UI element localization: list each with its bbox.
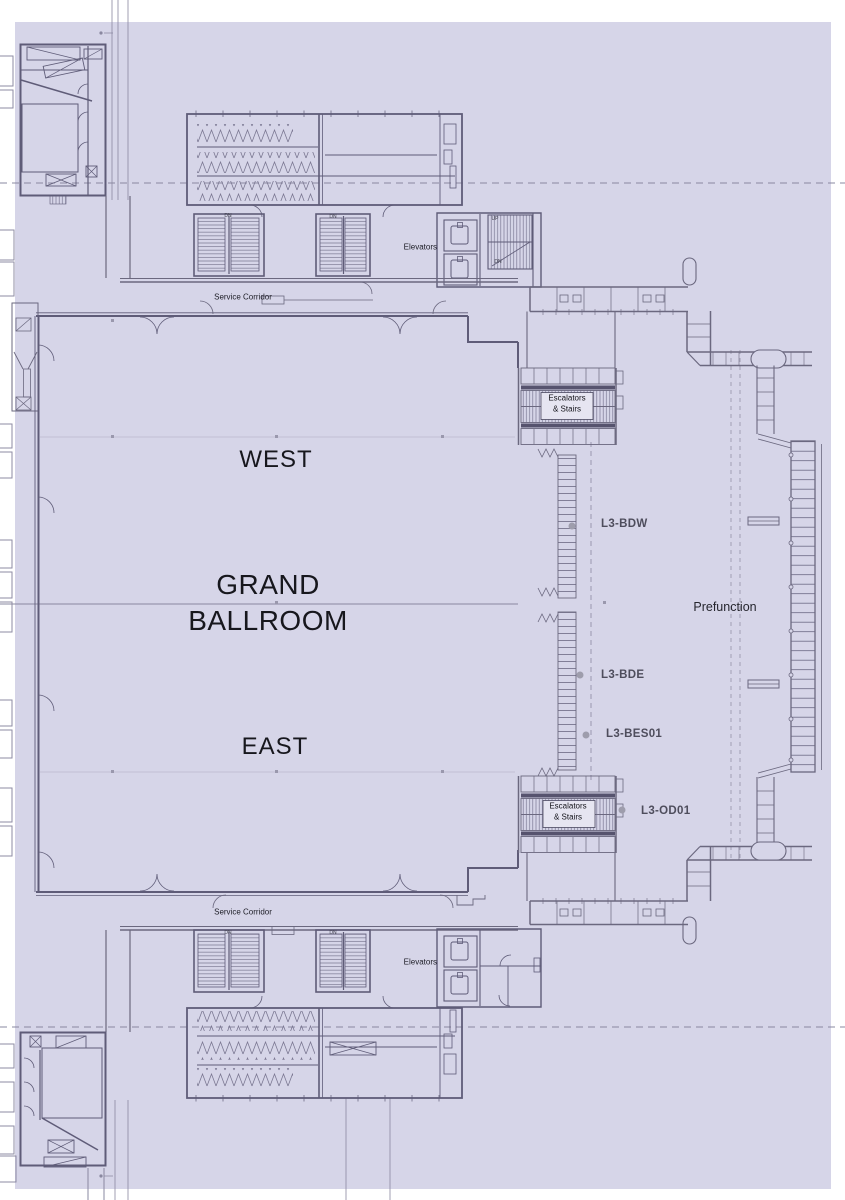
stair-dn-mark: DN: [329, 214, 336, 220]
label-service-corridor-top: Service Corridor: [214, 293, 272, 302]
escalators-line2: & Stairs: [554, 812, 582, 821]
location-marker-dot: [583, 732, 590, 739]
point-label-l3-bes01: L3-BES01: [606, 728, 662, 740]
label-elevators-bottom: Elevators: [404, 958, 437, 967]
point-label-l3-bde: L3-BDE: [601, 669, 644, 681]
room-title-ballroom: BALLROOM: [188, 605, 348, 637]
left-edge-room-fragments: [0, 56, 16, 1182]
room-label-east: EAST: [242, 733, 309, 761]
stair-up-mark: UP: [492, 216, 499, 222]
label-service-corridor-bottom: Service Corridor: [214, 908, 272, 917]
room-title-grand: GRAND: [216, 569, 320, 601]
room-label-west: WEST: [239, 446, 312, 474]
escalators-line1: Escalators: [549, 802, 586, 811]
stair-dn-mark: DN: [224, 213, 231, 219]
label-elevators-top: Elevators: [404, 243, 437, 252]
label-escalators-bottom: Escalators & Stairs: [549, 802, 586, 823]
floor-plan-canvas: WEST GRAND BALLROOM EAST Prefunction Ser…: [0, 0, 845, 1200]
stair-dn-mark: DN: [224, 930, 231, 936]
stair-dn-mark: DN: [329, 930, 336, 936]
label-escalators-top: Escalators & Stairs: [548, 394, 585, 415]
location-marker-dot: [569, 523, 576, 530]
stair-dn-mark: DN: [494, 259, 501, 265]
location-marker-dot: [577, 672, 584, 679]
escalators-line1: Escalators: [548, 394, 585, 403]
escalators-line2: & Stairs: [553, 404, 581, 413]
point-label-l3-bdw: L3-BDW: [601, 518, 648, 530]
area-label-prefunction: Prefunction: [693, 600, 756, 614]
point-label-l3-od01: L3-OD01: [641, 805, 690, 817]
location-marker-dot: [619, 807, 626, 814]
